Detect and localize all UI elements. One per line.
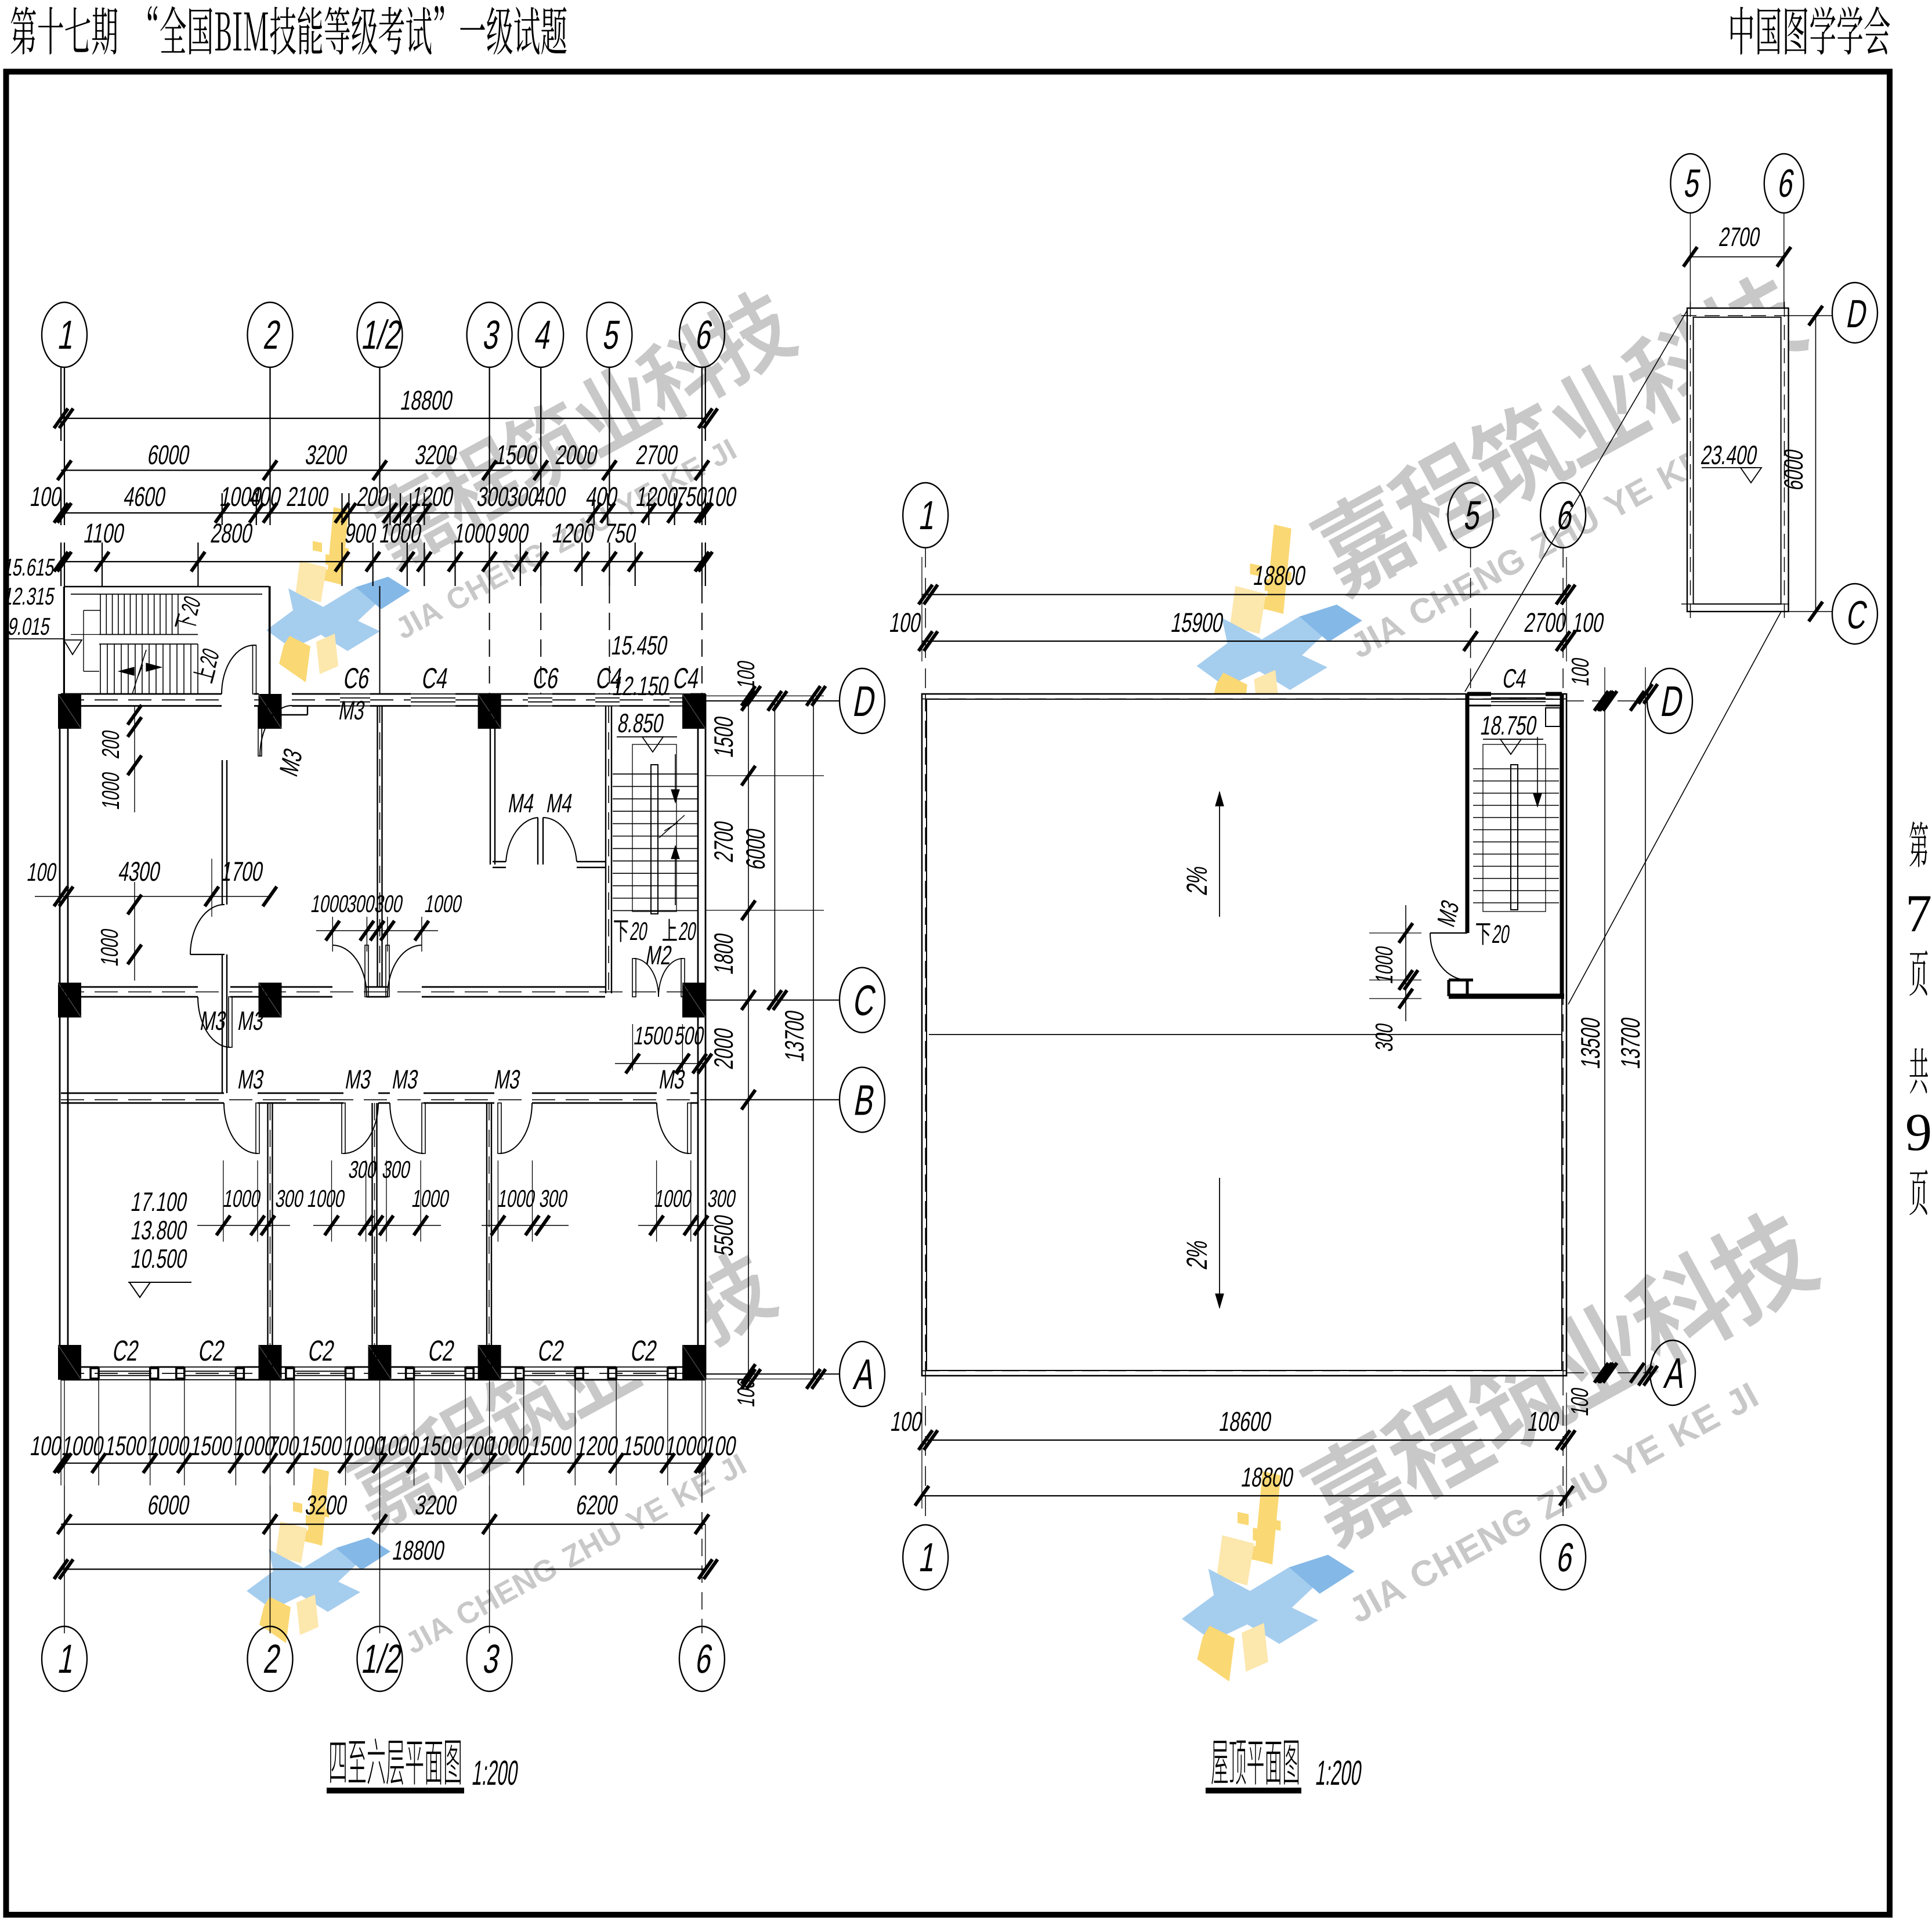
svg-text:13700: 13700 bbox=[1616, 1015, 1646, 1071]
svg-text:700: 700 bbox=[266, 1430, 302, 1461]
svg-text:300: 300 bbox=[538, 1185, 570, 1212]
svg-text:200: 200 bbox=[97, 728, 124, 760]
svg-text:1500: 1500 bbox=[710, 714, 739, 760]
svg-text:1000: 1000 bbox=[309, 890, 351, 917]
svg-text:1000: 1000 bbox=[60, 1430, 107, 1461]
svg-text:100: 100 bbox=[28, 481, 64, 512]
svg-text:100: 100 bbox=[1566, 655, 1594, 688]
svg-text:1000: 1000 bbox=[485, 1430, 532, 1461]
svg-text:3200: 3200 bbox=[413, 1489, 460, 1520]
svg-text:400: 400 bbox=[532, 481, 569, 512]
svg-text:M3: M3 bbox=[390, 1065, 421, 1095]
svg-text:1000: 1000 bbox=[222, 1185, 263, 1212]
svg-text:1100: 1100 bbox=[82, 518, 127, 548]
svg-text:2000: 2000 bbox=[553, 439, 600, 470]
svg-text:900: 900 bbox=[495, 518, 531, 548]
svg-text:M3: M3 bbox=[236, 1007, 266, 1036]
svg-text:1000: 1000 bbox=[96, 926, 123, 968]
svg-text:1500: 1500 bbox=[620, 1430, 667, 1461]
svg-text:9: 9 bbox=[1905, 1102, 1932, 1162]
svg-text:6000: 6000 bbox=[146, 1489, 193, 1520]
svg-text:1200: 1200 bbox=[574, 1430, 621, 1461]
svg-text:1200: 1200 bbox=[410, 481, 457, 512]
svg-text:18800: 18800 bbox=[399, 385, 456, 415]
svg-text:M3: M3 bbox=[337, 696, 367, 726]
svg-text:7: 7 bbox=[1905, 884, 1932, 943]
svg-text:5500: 5500 bbox=[710, 1213, 739, 1258]
svg-text:17.100: 17.100 bbox=[129, 1188, 190, 1217]
svg-text:18800: 18800 bbox=[390, 1535, 448, 1565]
svg-text:1000: 1000 bbox=[653, 1185, 694, 1212]
svg-text:9.015: 9.015 bbox=[6, 613, 53, 640]
svg-text:300: 300 bbox=[1370, 1021, 1398, 1053]
svg-text:2700: 2700 bbox=[1522, 607, 1569, 638]
svg-text:1000: 1000 bbox=[496, 1185, 538, 1212]
svg-text:1000: 1000 bbox=[410, 1185, 452, 1212]
svg-text:400: 400 bbox=[247, 481, 284, 512]
svg-text:18800: 18800 bbox=[1251, 560, 1309, 591]
svg-text:10.500: 10.500 bbox=[129, 1245, 190, 1274]
svg-text:12.315: 12.315 bbox=[2, 583, 57, 610]
svg-text:100: 100 bbox=[888, 1406, 925, 1437]
svg-text:6000: 6000 bbox=[146, 439, 193, 470]
svg-text:400: 400 bbox=[584, 481, 620, 512]
svg-text:1000: 1000 bbox=[1370, 943, 1398, 985]
svg-text:6000: 6000 bbox=[741, 826, 771, 872]
svg-text:100: 100 bbox=[28, 1430, 64, 1461]
svg-text:12.150: 12.150 bbox=[610, 672, 671, 701]
svg-text:100: 100 bbox=[1570, 607, 1607, 638]
svg-text:1000: 1000 bbox=[306, 1185, 348, 1212]
svg-text:100: 100 bbox=[25, 859, 59, 887]
svg-text:100: 100 bbox=[703, 481, 739, 512]
svg-text:13700: 13700 bbox=[780, 1008, 810, 1064]
svg-text:2000: 2000 bbox=[710, 1025, 739, 1071]
svg-text:1500: 1500 bbox=[528, 1430, 575, 1461]
svg-text:2700: 2700 bbox=[710, 819, 739, 865]
svg-text:M4: M4 bbox=[544, 789, 575, 819]
svg-text:2700: 2700 bbox=[634, 439, 681, 470]
svg-text:4300: 4300 bbox=[117, 856, 164, 887]
svg-text:23.400: 23.400 bbox=[1699, 441, 1760, 471]
svg-text:1800: 1800 bbox=[710, 931, 739, 977]
svg-text:1500: 1500 bbox=[493, 439, 540, 470]
svg-text:2%: 2% bbox=[1181, 1237, 1214, 1271]
svg-text:100: 100 bbox=[887, 607, 924, 638]
svg-text:1:200: 1:200 bbox=[1314, 1753, 1364, 1792]
svg-text:M3: M3 bbox=[198, 1007, 229, 1036]
svg-text:3200: 3200 bbox=[303, 1489, 350, 1520]
svg-text:300: 300 bbox=[706, 1185, 739, 1212]
svg-text:M3: M3 bbox=[236, 1065, 266, 1095]
svg-text:15900: 15900 bbox=[1169, 607, 1227, 638]
svg-text:300: 300 bbox=[381, 1156, 413, 1183]
svg-text:1500: 1500 bbox=[189, 1430, 236, 1461]
svg-text:1500: 1500 bbox=[418, 1430, 465, 1461]
svg-text:100: 100 bbox=[732, 658, 759, 690]
svg-text:300: 300 bbox=[345, 890, 378, 917]
svg-text:4600: 4600 bbox=[122, 481, 169, 512]
svg-text:3200: 3200 bbox=[303, 439, 350, 470]
svg-text:2800: 2800 bbox=[209, 518, 256, 548]
svg-text:M3: M3 bbox=[657, 1065, 688, 1095]
svg-text:1000: 1000 bbox=[452, 518, 499, 548]
svg-text:1200: 1200 bbox=[634, 481, 681, 512]
svg-text:1000: 1000 bbox=[375, 1430, 422, 1461]
svg-text:1500: 1500 bbox=[632, 1022, 675, 1051]
svg-text:M4: M4 bbox=[506, 789, 537, 819]
svg-text:1200: 1200 bbox=[551, 518, 598, 548]
svg-text:1500: 1500 bbox=[103, 1430, 150, 1461]
svg-text:18800: 18800 bbox=[1239, 1462, 1297, 1492]
svg-text:900: 900 bbox=[342, 518, 379, 548]
svg-text:18600: 18600 bbox=[1217, 1406, 1275, 1437]
svg-text:13500: 13500 bbox=[1576, 1015, 1606, 1071]
svg-text:1:200: 1:200 bbox=[470, 1753, 520, 1792]
svg-text:300: 300 bbox=[274, 1185, 306, 1212]
svg-text:1000: 1000 bbox=[423, 890, 465, 917]
svg-text:300: 300 bbox=[373, 890, 406, 917]
svg-text:M3: M3 bbox=[343, 1065, 374, 1095]
svg-text:15.450: 15.450 bbox=[609, 631, 670, 661]
svg-text:M2: M2 bbox=[643, 941, 674, 971]
svg-text:2%: 2% bbox=[1181, 863, 1214, 897]
svg-text:M3: M3 bbox=[492, 1065, 523, 1095]
svg-text:18.750: 18.750 bbox=[1478, 711, 1539, 741]
svg-text:6000: 6000 bbox=[1779, 447, 1809, 493]
svg-text:8.850: 8.850 bbox=[616, 709, 667, 739]
svg-text:3200: 3200 bbox=[413, 439, 460, 470]
svg-text:15.615: 15.615 bbox=[2, 554, 57, 581]
svg-text:100: 100 bbox=[703, 1430, 739, 1461]
svg-text:2700: 2700 bbox=[1717, 223, 1763, 252]
svg-text:2100: 2100 bbox=[285, 481, 332, 512]
svg-text:13.800: 13.800 bbox=[129, 1216, 190, 1246]
svg-text:300: 300 bbox=[347, 1156, 379, 1183]
svg-text:1500: 1500 bbox=[298, 1430, 345, 1461]
svg-text:6200: 6200 bbox=[574, 1489, 621, 1520]
svg-text:1000: 1000 bbox=[97, 769, 124, 811]
svg-text:1000: 1000 bbox=[663, 1430, 710, 1461]
svg-text:500: 500 bbox=[672, 1022, 707, 1051]
svg-text:200: 200 bbox=[354, 481, 391, 512]
svg-text:100: 100 bbox=[1566, 1385, 1593, 1417]
svg-text:1700: 1700 bbox=[219, 856, 266, 887]
svg-text:100: 100 bbox=[1525, 1406, 1562, 1437]
svg-text:1000: 1000 bbox=[146, 1430, 193, 1461]
